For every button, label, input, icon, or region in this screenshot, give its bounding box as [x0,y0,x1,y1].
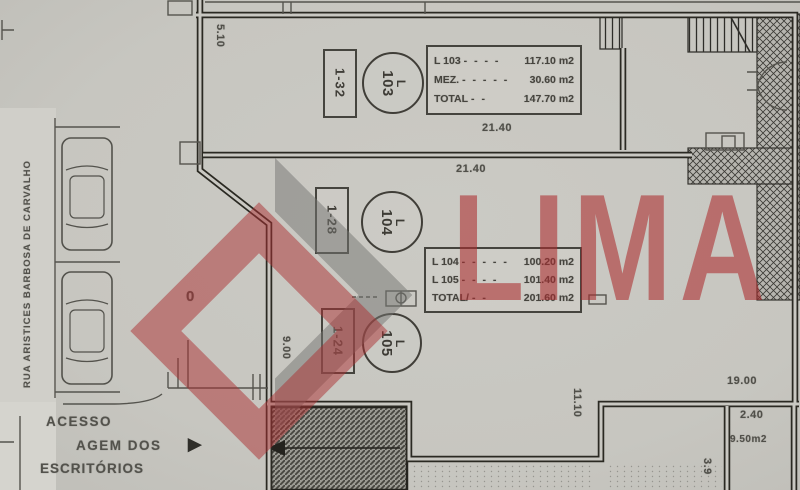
dim-bottom-width: 19.00 [727,375,757,387]
area-label: L 103 [434,55,461,67]
stall-tag-103: 1-32 [323,49,357,118]
street-edge-lines [0,416,20,490]
dotted-ground [413,463,722,489]
corner-fragment [2,20,14,40]
parking-stall-lines [55,118,120,398]
car-icon [62,138,112,250]
area-label: TOTAL [434,93,468,105]
car-icon [62,272,112,384]
area-label: MEZ. [434,74,459,86]
area-dashes: - - - - [464,55,522,67]
dim-patio-depth: 3.9 [701,458,713,475]
area-value: 30.60 m2 [530,74,574,86]
unit-number: 104 [379,209,394,236]
access-arrow-icon: ► [183,431,207,459]
floor-plan-scan: RUA ARISTICES BARBOSA DE CARVALHO 5.10 2… [0,0,800,490]
street-name-label: RUA ARISTICES BARBOSA DE CARVALHO [22,122,33,388]
area-dashes: - - [471,93,521,105]
watermark-logo-text: LIMA [452,172,773,324]
dim-width-103: 21.40 [482,122,512,134]
unit-circle-103-text: L 103 [380,70,407,97]
top-pilaster [168,1,192,15]
access-label-1: ACESSO [46,414,112,429]
area-value: 117.10 m2 [524,55,574,67]
dim-top-width: 5.10 [214,24,226,47]
unit-letter: L [395,70,407,97]
unit-circle-103: L 103 [362,52,424,114]
unit-number: 103 [380,70,395,97]
area-row: MEZ. - - - - - 30.60 m2 [434,74,574,86]
driveway-curb [63,394,162,404]
unit-letter: L [394,209,406,236]
dim-right-depth: 11.10 [571,388,583,417]
area-table-103: L 103 - - - - 117.10 m2 MEZ. - - - - - 3… [426,45,582,115]
unit-circle-104-text: L 104 [379,209,406,236]
door-jamb-lines [747,72,757,90]
area-row: L 103 - - - - 117.10 m2 [434,55,574,67]
area-value: 147.70 m2 [524,93,574,105]
dim-patio-area: 9.50m2 [730,434,767,445]
fixture-box-inner [722,136,735,148]
dim-patio-width: 2.40 [740,409,763,421]
access-label-3: ESCRITÓRIOS [40,461,144,476]
access-label-2: AGEM DOS [76,438,162,453]
unit-letter: L [394,330,406,357]
parked-cars [62,138,112,384]
area-row: TOTAL - - 147.70 m2 [434,93,574,105]
unit-circle-104: L 104 [361,191,423,253]
area-dashes: - - - - - [462,74,527,86]
